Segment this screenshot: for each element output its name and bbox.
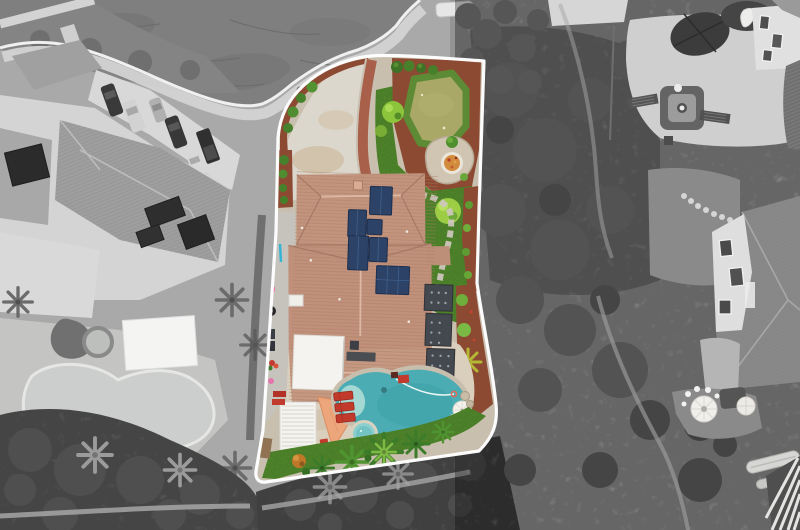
red-loungers xyxy=(333,391,355,423)
front-walk xyxy=(700,338,740,396)
chimney xyxy=(353,181,362,190)
dirt-patch xyxy=(318,110,354,130)
pebble-circle xyxy=(467,401,474,408)
balcony xyxy=(745,282,755,308)
asphalt-patch xyxy=(290,18,370,46)
pool-noodle xyxy=(280,244,281,262)
neighbor-spa xyxy=(84,328,112,356)
subject-property xyxy=(250,45,510,490)
white-table xyxy=(289,295,303,306)
white-chair xyxy=(674,84,682,92)
storage-sheds xyxy=(422,284,457,376)
neighbor-patio-cover xyxy=(122,316,197,371)
bush xyxy=(460,173,468,181)
white-patio-cover xyxy=(292,335,344,391)
aerial-scene xyxy=(0,0,800,530)
pebble-circle xyxy=(461,392,470,401)
red-mat xyxy=(398,375,410,384)
fire-pit xyxy=(443,154,462,173)
top-structure xyxy=(548,0,628,26)
aerial-photo xyxy=(0,0,800,530)
grill xyxy=(391,372,398,378)
